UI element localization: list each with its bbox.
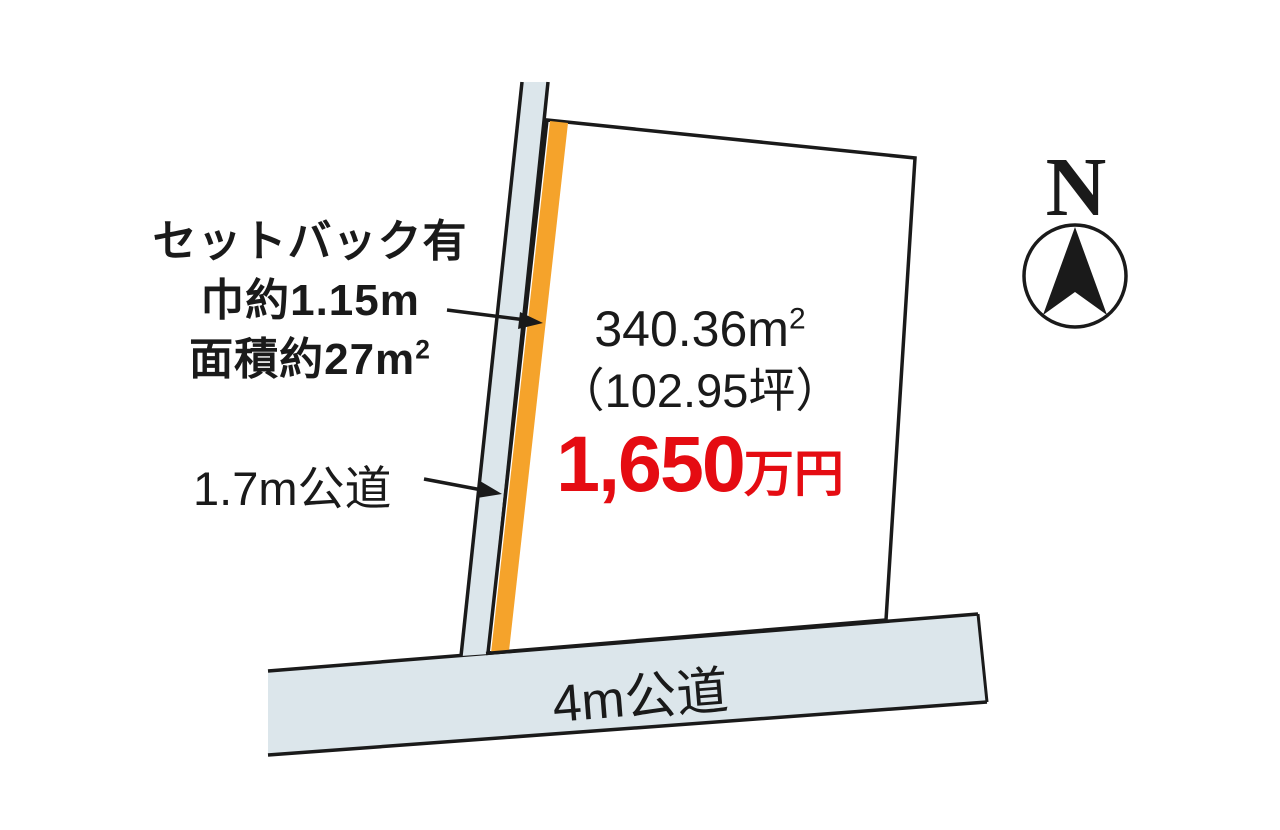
land-plot-diagram: セットバック有 巾約1.15m 面積約27m2 1.7m公道 340.36m2 … [0, 0, 1280, 830]
setback-note-line2: 巾約1.15m [125, 271, 495, 330]
parcel-price: 1,650万円 [495, 424, 905, 527]
parcel-area-m2: 340.36m2 [495, 300, 905, 358]
parcel-info: 340.36m2 （102.95坪） 1,650万円 [495, 300, 905, 527]
parcel-area-tsubo: （102.95坪） [495, 358, 905, 424]
price-unit: 万円 [744, 446, 844, 502]
side-road-label: 1.7m公道 [193, 450, 433, 519]
north-arrow-icon [1043, 227, 1107, 315]
compass-north-label: N [1026, 146, 1126, 230]
square-meter-sup: 2 [789, 302, 806, 335]
square-meter-sup: 2 [415, 334, 431, 364]
price-amount: 1,650 [556, 419, 744, 508]
setback-note: セットバック有 巾約1.15m 面積約27m2 [125, 212, 495, 389]
setback-note-line3: 面積約27m2 [125, 330, 495, 389]
parcel-bottom-edge-patch [486, 651, 515, 654]
setback-note-line1: セットバック有 [125, 212, 495, 271]
